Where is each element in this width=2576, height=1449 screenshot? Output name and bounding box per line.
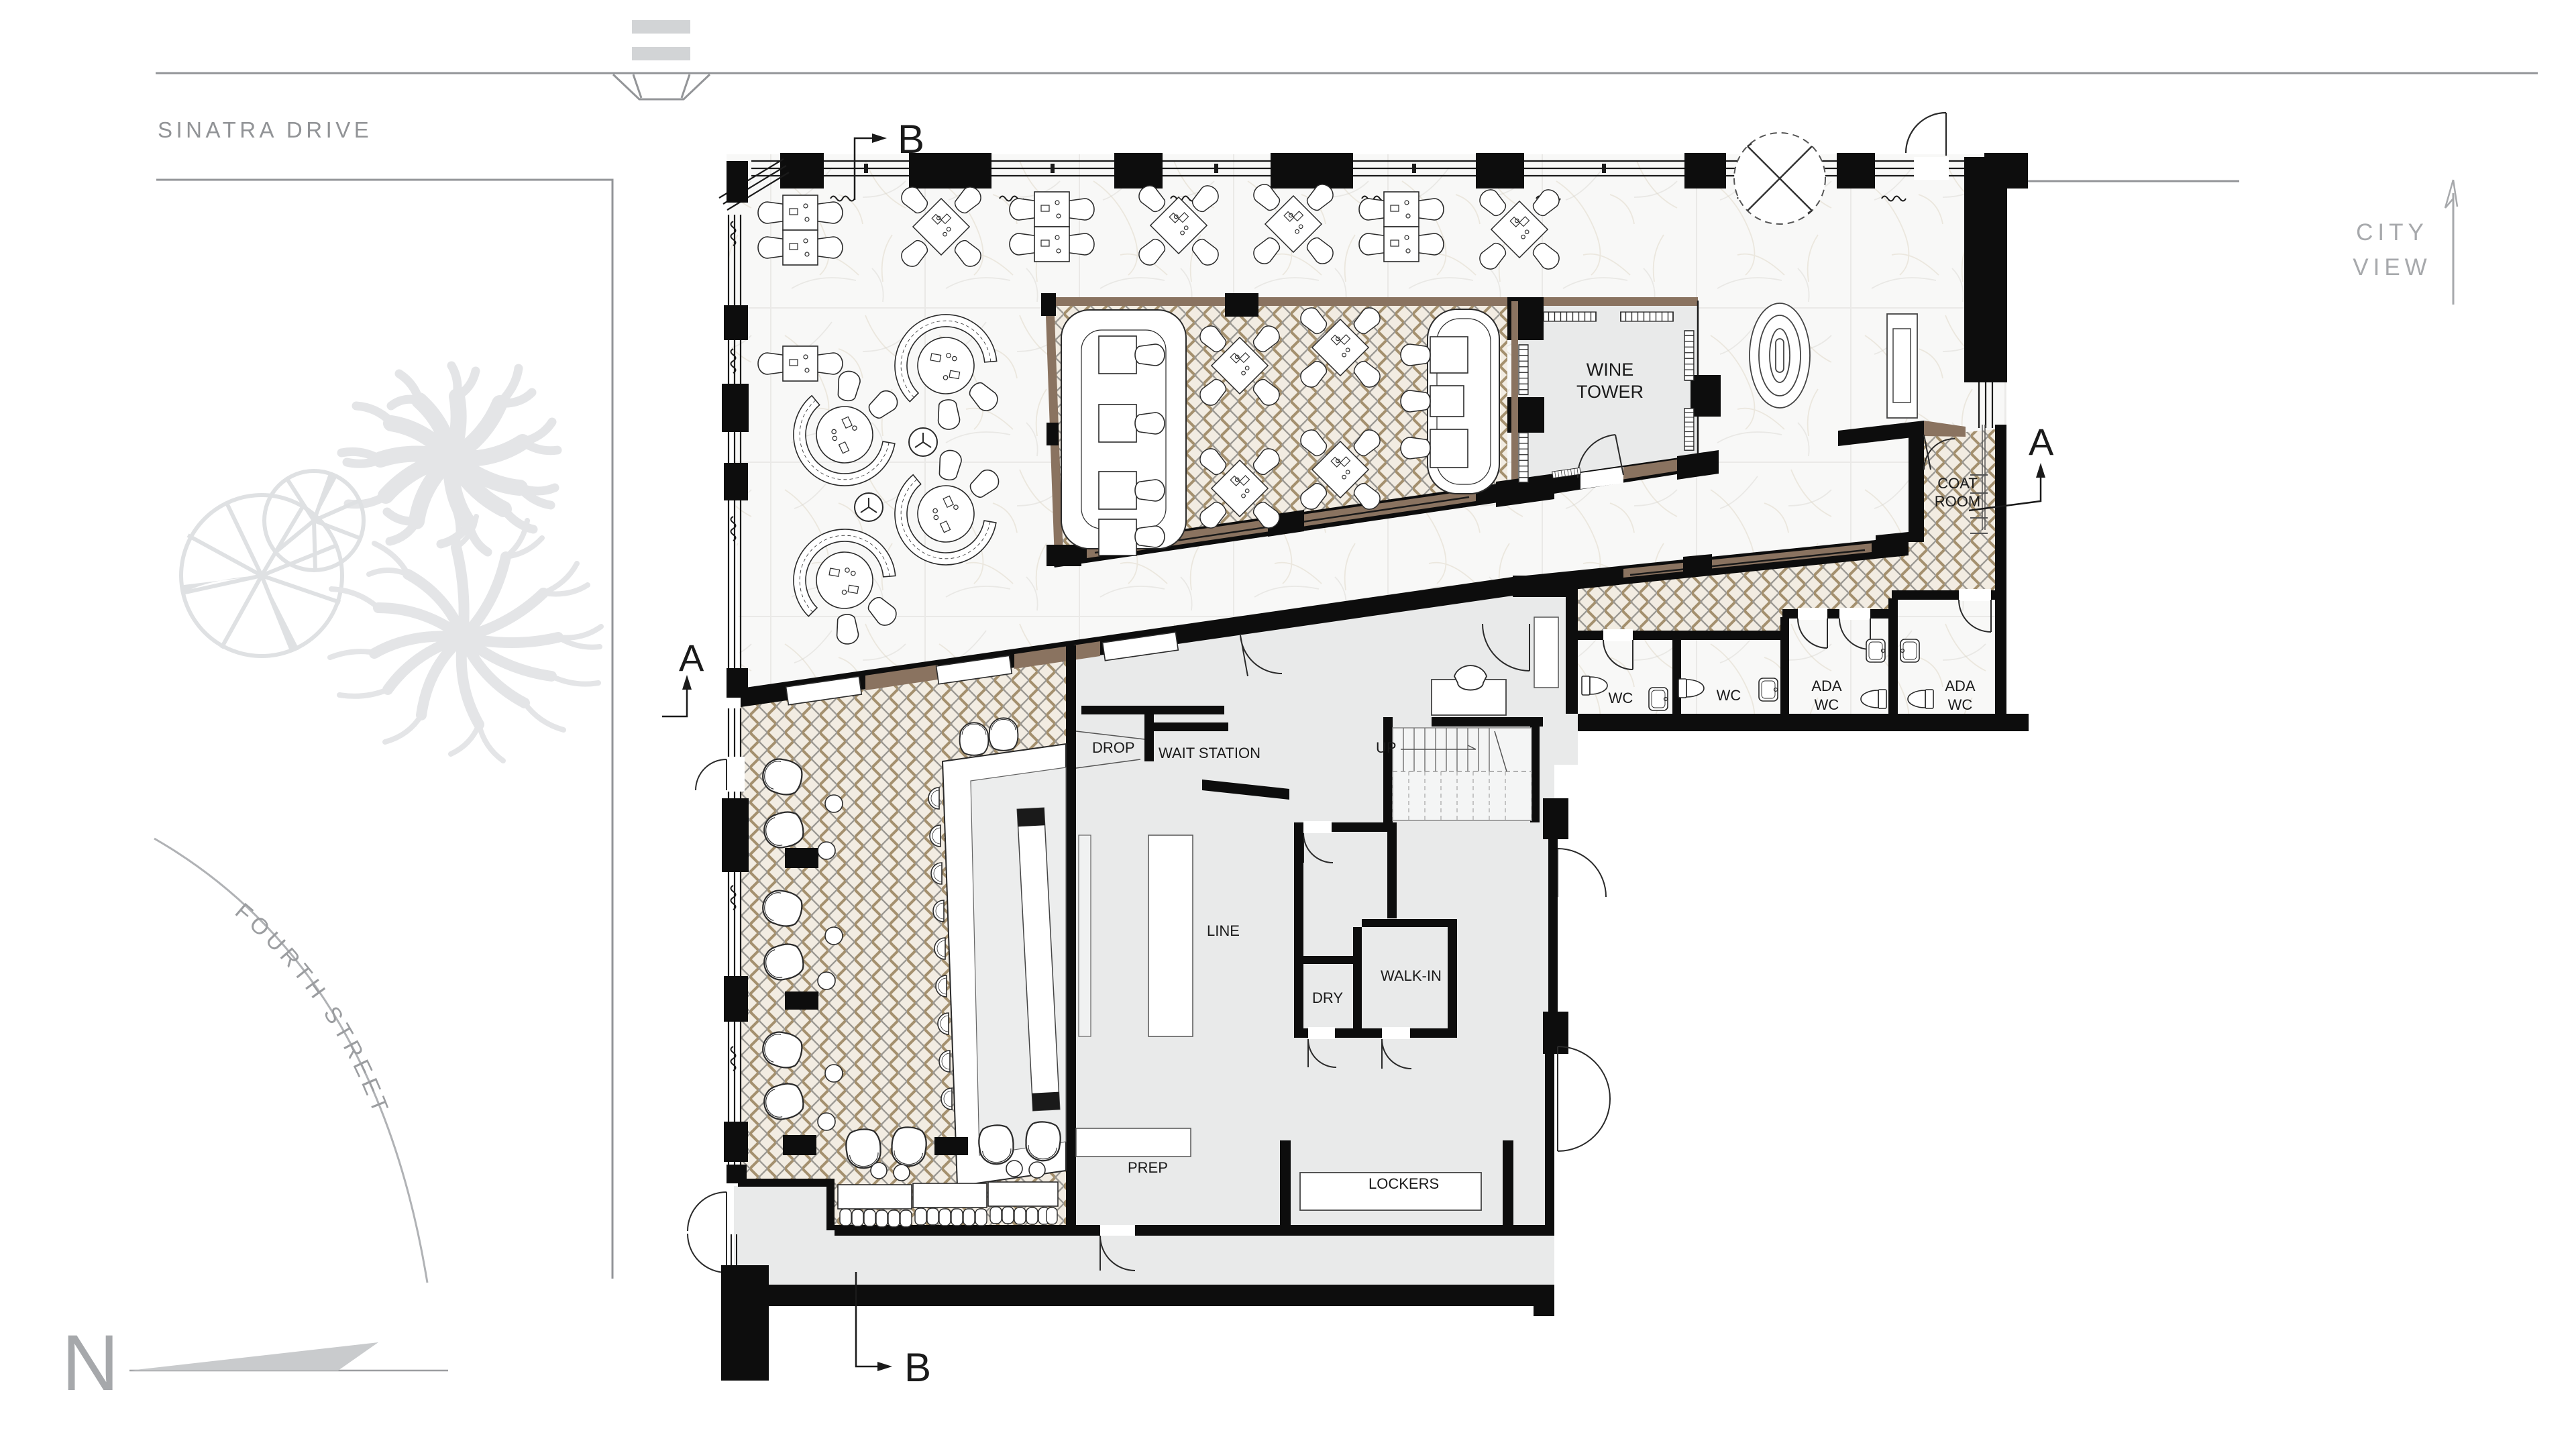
svg-text:WC: WC	[1717, 687, 1741, 704]
svg-text:DROP: DROP	[1092, 739, 1135, 756]
svg-text:ADA: ADA	[1945, 678, 1976, 694]
svg-text:TOWER: TOWER	[1576, 382, 1644, 402]
svg-text:ROOM: ROOM	[1935, 493, 1980, 510]
svg-text:WINE: WINE	[1587, 360, 1634, 380]
svg-text:B: B	[898, 117, 924, 162]
svg-text:LOCKERS: LOCKERS	[1368, 1175, 1439, 1192]
svg-text:VIEW: VIEW	[2353, 254, 2431, 280]
svg-text:LINE: LINE	[1207, 922, 1240, 939]
svg-text:A: A	[2029, 421, 2054, 463]
svg-text:WC: WC	[1609, 690, 1633, 706]
svg-text:N: N	[62, 1319, 119, 1407]
svg-text:A: A	[679, 637, 704, 679]
svg-text:WALK-IN: WALK-IN	[1381, 967, 1442, 984]
svg-text:B: B	[904, 1345, 931, 1390]
svg-text:COAT: COAT	[1937, 475, 1977, 492]
svg-text:SINATRA DRIVE: SINATRA DRIVE	[158, 117, 372, 142]
svg-text:UP: UP	[1376, 739, 1397, 756]
svg-text:CITY: CITY	[2356, 219, 2428, 246]
svg-text:PREP: PREP	[1128, 1159, 1168, 1176]
svg-text:DRY: DRY	[1312, 989, 1343, 1006]
svg-text:WC: WC	[1948, 696, 1973, 713]
svg-text:WC: WC	[1815, 696, 1839, 713]
svg-text:WAIT STATION: WAIT STATION	[1159, 745, 1260, 761]
svg-text:ADA: ADA	[1811, 678, 1842, 694]
